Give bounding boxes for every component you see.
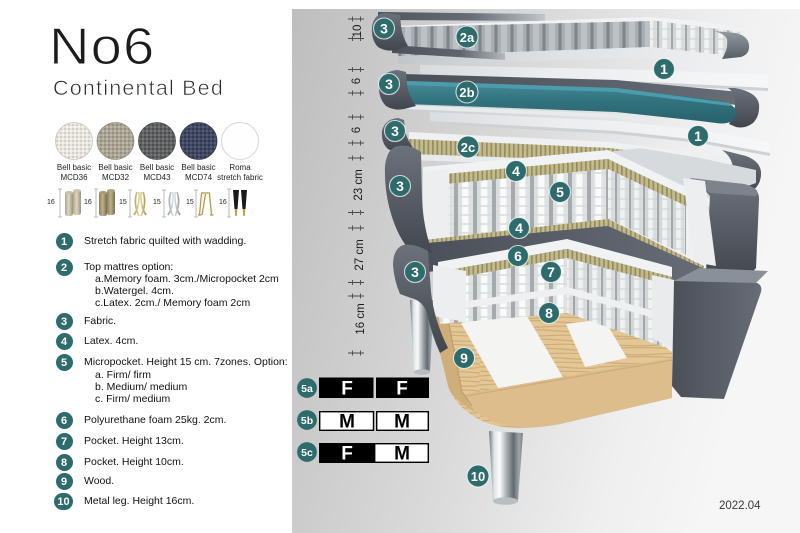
- svg-text:4: 4: [512, 163, 520, 179]
- svg-text:3: 3: [411, 264, 419, 280]
- svg-text:6: 6: [351, 127, 363, 133]
- svg-text:2c: 2c: [461, 140, 475, 155]
- svg-text:1: 1: [660, 61, 668, 77]
- svg-text:7: 7: [547, 264, 555, 280]
- svg-text:16 cm: 16 cm: [355, 303, 367, 334]
- svg-text:M: M: [394, 444, 410, 465]
- svg-text:5a: 5a: [301, 383, 313, 395]
- svg-text:2a: 2a: [460, 30, 475, 45]
- svg-text:27 cm: 27 cm: [354, 239, 366, 270]
- svg-text:F: F: [396, 379, 408, 400]
- svg-text:23 cm: 23 cm: [353, 169, 365, 200]
- svg-text:9: 9: [460, 350, 468, 366]
- svg-text:3: 3: [385, 76, 393, 92]
- svg-text:5c: 5c: [301, 447, 313, 459]
- svg-text:F: F: [341, 379, 353, 400]
- svg-text:10: 10: [352, 25, 364, 38]
- svg-text:6: 6: [514, 248, 522, 264]
- svg-text:5b: 5b: [301, 415, 313, 427]
- svg-text:M: M: [339, 412, 355, 433]
- svg-text:1: 1: [694, 128, 702, 144]
- svg-text:3: 3: [396, 178, 404, 194]
- svg-text:M: M: [394, 412, 410, 433]
- svg-text:6: 6: [351, 78, 363, 84]
- svg-text:2022.04: 2022.04: [719, 500, 761, 512]
- svg-text:5: 5: [556, 184, 564, 200]
- svg-text:8: 8: [545, 305, 553, 321]
- svg-text:4: 4: [515, 220, 523, 236]
- svg-text:3: 3: [380, 21, 388, 37]
- svg-text:10: 10: [471, 469, 485, 484]
- svg-text:2b: 2b: [459, 85, 474, 100]
- svg-text:F: F: [341, 444, 353, 465]
- svg-text:3: 3: [391, 123, 399, 139]
